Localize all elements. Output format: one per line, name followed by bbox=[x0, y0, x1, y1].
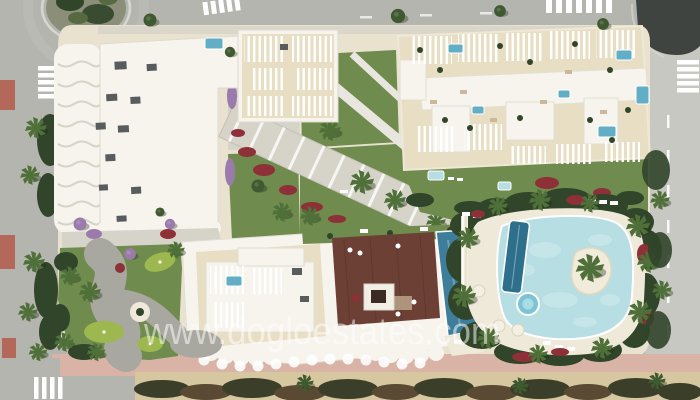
bottom-left-road bbox=[0, 358, 63, 400]
pool-fence bbox=[461, 216, 468, 292]
south-plunge-pool bbox=[226, 276, 242, 286]
watermark-text: www.dogloestates.com bbox=[143, 311, 500, 353]
deck-pavilion bbox=[364, 284, 394, 310]
pool-island bbox=[572, 248, 611, 294]
beach-strip bbox=[134, 372, 700, 400]
jacuzzi bbox=[517, 293, 539, 315]
site-plan-svg: www.dogloestates.com bbox=[0, 0, 700, 400]
aerial-site-render: www.dogloestates.com bbox=[0, 0, 700, 400]
northwest-plunge-pool bbox=[205, 38, 223, 49]
northwest-pergola-wing bbox=[238, 30, 338, 122]
building-northeast bbox=[398, 26, 650, 170]
